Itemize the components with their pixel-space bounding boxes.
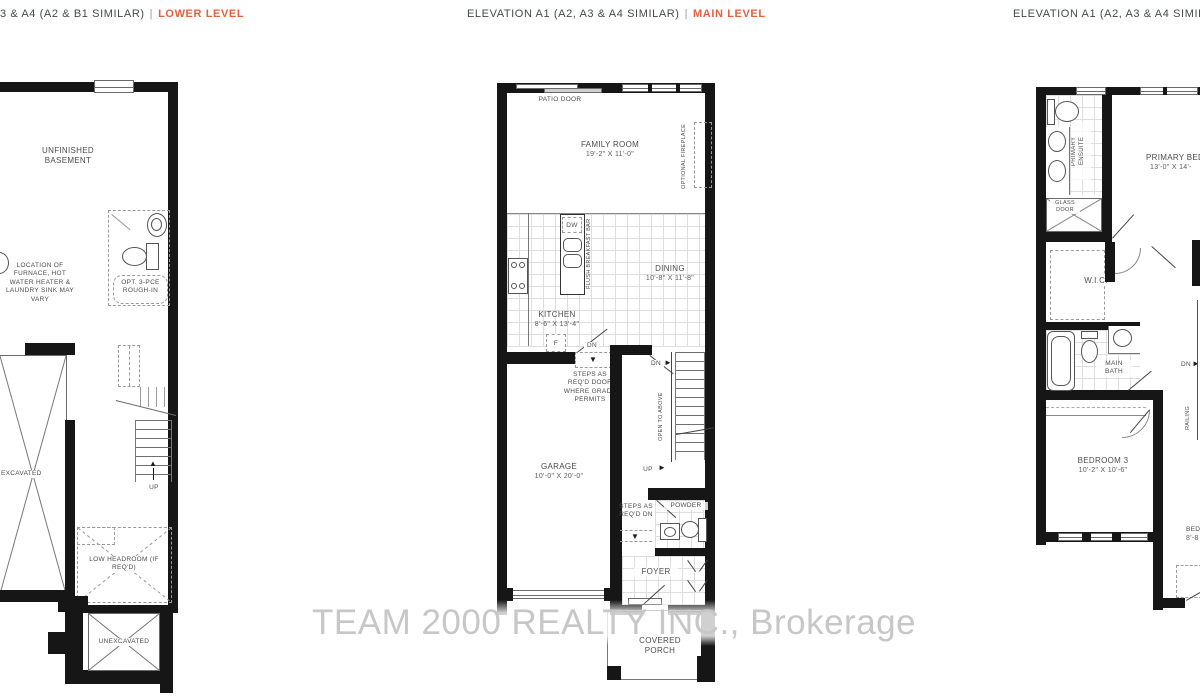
wall [1192, 240, 1200, 286]
room-label-bedroom3: BEDROOM 3 10'-2" X 10'-6" [1070, 456, 1136, 475]
label-flush-breakfast-bar: FLUSH BREAKFAST BAR [586, 213, 596, 295]
sink-icon [1048, 131, 1066, 152]
sink-icon [1048, 160, 1066, 182]
up-arrow-icon: ▲ [149, 460, 157, 468]
railing-line [1197, 300, 1198, 440]
room-label-powder: POWDER [664, 502, 708, 510]
wall [1153, 390, 1163, 610]
bedroom2-name: BED [1186, 526, 1200, 534]
header-separator: | [680, 8, 693, 20]
wall [497, 352, 575, 364]
room-label-kitchen: KITCHEN 8'-6" X 13'-4" [526, 310, 588, 329]
wall [1102, 95, 1112, 235]
room-label-bedroom2: BED 8'-8 [1186, 526, 1200, 544]
stair-treads-dashed [140, 387, 172, 407]
label-railing: RAILING [1185, 396, 1195, 440]
label-dn-stairs: DN [648, 360, 664, 368]
header-main-level: ELEVATION A1 (A2, A3 & A4 SIMILAR)|MAIN … [467, 8, 766, 20]
porch-post [607, 666, 621, 680]
kitchen-dims: 8'-6" X 13'-4" [526, 320, 588, 329]
wall [65, 420, 75, 597]
fridge: F [546, 334, 566, 352]
wall [622, 345, 652, 355]
door-leaf [1151, 246, 1175, 268]
wall [1036, 87, 1046, 545]
window-mullion [1112, 532, 1121, 542]
note-furnace: LOCATION OF FURNACE, HOT WATER HEATER & … [2, 262, 78, 304]
room-label-foyer: FOYER [634, 567, 678, 577]
note-steps-grade: STEPS AS REQ'D DOOR WHERE GRADE PERMITS [563, 371, 617, 405]
label-optional-fireplace: OPTIONAL FIREPLACE [681, 118, 692, 194]
label-rough-in: OPT. 3-PCE ROUGH-IN [113, 275, 168, 304]
toilet-tank-icon [146, 243, 159, 270]
sink-icon [1113, 329, 1132, 347]
patio-door [544, 88, 602, 93]
primary-bedroom-name: PRIMARY BEDRO [1146, 153, 1200, 163]
wall [648, 488, 715, 500]
toilet-icon [1055, 101, 1079, 122]
garage-dims: 10'-0" X 20'-0" [524, 472, 594, 481]
family-room-dims: 19'-2" X 11'-0" [572, 150, 648, 159]
brokerage-watermark: TEAM 2000 REALTY INC., Brokerage [312, 600, 897, 646]
header-lower-prefix: 3 & A4 (A2 & B1 SIMILAR) [0, 8, 145, 20]
wall [1105, 242, 1115, 282]
family-room-window [622, 84, 702, 92]
door-leaf [1112, 214, 1134, 238]
window [1140, 87, 1198, 95]
label-excavated: EXCAVATED [1, 470, 63, 478]
wall [610, 345, 622, 615]
toilet-tank-icon [1047, 99, 1055, 125]
note-steps-reqd-dn: STEPS AS REQ'D DN [617, 503, 655, 520]
wall [655, 548, 715, 556]
right-arrow-icon: ► [1192, 360, 1200, 368]
primary-bedroom-dims: 13'-0" X 14'- [1146, 163, 1200, 172]
sink-icon [563, 238, 582, 252]
arrow-stem [153, 468, 154, 480]
dining-name: DINING [638, 264, 702, 274]
window-mullion [1082, 532, 1091, 542]
toilet-tank-icon [1081, 331, 1098, 339]
sink-icon [660, 523, 680, 540]
toilet-tank-icon [698, 518, 707, 542]
header-upper-level: ELEVATION A1 (A2, A3 & A4 SIMILAR [1013, 8, 1200, 20]
garage-door [507, 590, 610, 599]
optional-fireplace [694, 122, 712, 188]
header-main-prefix: ELEVATION A1 (A2, A3 & A4 SIMILAR) [467, 8, 680, 20]
bathtub-icon [1047, 331, 1075, 391]
porch-post [697, 656, 715, 682]
dining-dims: 10'-8" X 11'-8" [638, 274, 702, 283]
sink-icon [147, 213, 167, 237]
header-separator: | [145, 8, 158, 20]
label-unexcavated: UNEXCAVATED [92, 638, 156, 646]
sink-icon [563, 254, 582, 268]
window-mullion [648, 83, 652, 93]
room-label-primary-bedroom: PRIMARY BEDRO 13'-0" X 14'- [1146, 153, 1200, 172]
bedroom2-dims: 8'-8 [1186, 534, 1200, 543]
wall [25, 343, 75, 355]
wall [1155, 598, 1185, 608]
room-label-garage: GARAGE 10'-0" X 20'-0" [524, 462, 594, 481]
room-label-primary-ensuite: PRIMARY ENSUITE [1071, 122, 1091, 180]
down-arrow-icon: ▼ [589, 356, 597, 364]
room-label-main-bath: MAIN BATH [1096, 360, 1132, 377]
low-headroom-detail [77, 527, 115, 545]
door-swing [1115, 248, 1141, 274]
down-arrow-icon: ▼ [631, 533, 639, 541]
label-dn-kitchen: DN [584, 342, 600, 350]
toilet-icon [122, 247, 147, 266]
label-open-to-above: OPEN TO ABOVE [658, 388, 668, 446]
stair-treads [675, 352, 705, 460]
header-lower-level-label: LOWER LEVEL [158, 8, 244, 20]
toilet-icon [681, 521, 699, 538]
basement-window [94, 80, 134, 93]
room-label-covered-porch: COVERED PORCH [638, 636, 682, 657]
floorplan-sheet: 3 & A4 (A2 & B1 SIMILAR)|LOWER LEVEL ELE… [0, 0, 1200, 696]
wall [48, 632, 65, 654]
room-label-family-room: FAMILY ROOM 19'-2" X 11'-0" [572, 140, 648, 159]
wall [75, 605, 173, 613]
wall [65, 612, 83, 674]
room-label-dining: DINING 10'-8" X 11'-8" [638, 264, 702, 283]
bedroom3-dims: 10'-2" X 10'-6" [1070, 466, 1136, 475]
window-mullion [676, 83, 680, 93]
label-up-stairs: UP [640, 466, 656, 474]
garage-name: GARAGE [524, 462, 594, 472]
stair-railing-line [671, 352, 672, 462]
label-patio-door: PATIO DOOR [534, 96, 586, 104]
stair-landing-dashed [118, 345, 140, 387]
wall [65, 670, 165, 684]
wall [160, 607, 173, 693]
label-glass-door: GLASS DOOR [1050, 200, 1080, 214]
right-arrow-icon: ► [658, 464, 666, 472]
family-room-name: FAMILY ROOM [572, 140, 648, 150]
stove-icon [508, 258, 528, 294]
wall [497, 83, 507, 615]
wall [0, 82, 178, 92]
bedroom3-window [1058, 533, 1148, 541]
window-mullion [1163, 87, 1167, 95]
kitchen-name: KITCHEN [526, 310, 588, 320]
label-low-headroom: LOW HEADROOM (IF REQ'D) [89, 556, 159, 573]
room-label-unfinished-basement: UNFINISHED BASEMENT [28, 146, 108, 167]
label-up: UP [146, 484, 162, 492]
bedroom3-name: BEDROOM 3 [1070, 456, 1136, 466]
dishwasher: DW [562, 217, 582, 233]
header-upper-prefix: ELEVATION A1 (A2, A3 & A4 SIMILAR [1013, 8, 1200, 20]
wall [1036, 232, 1112, 242]
wall [1036, 390, 1163, 400]
window [1076, 87, 1106, 95]
header-main-level-label: MAIN LEVEL [693, 8, 766, 20]
header-lower-level: 3 & A4 (A2 & B1 SIMILAR)|LOWER LEVEL [0, 8, 244, 20]
